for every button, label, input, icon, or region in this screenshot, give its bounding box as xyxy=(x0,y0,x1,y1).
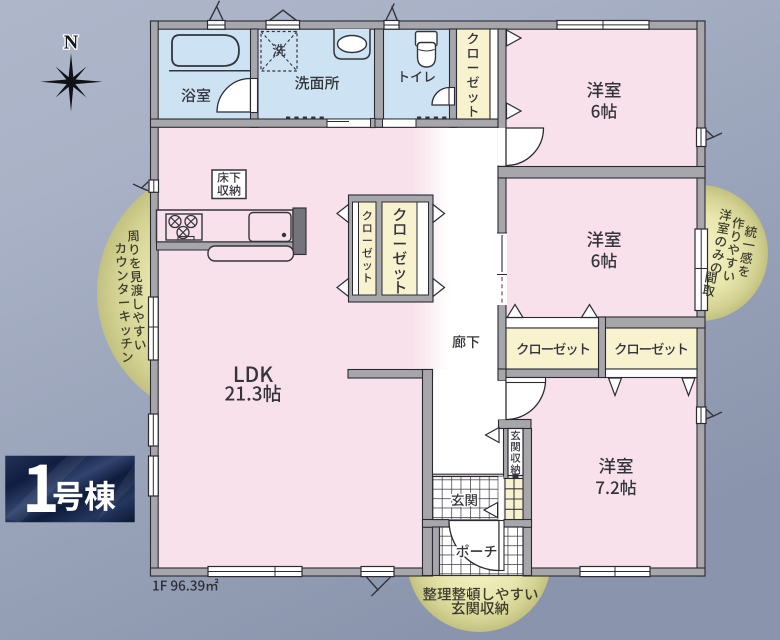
svg-text:N: N xyxy=(64,32,79,54)
